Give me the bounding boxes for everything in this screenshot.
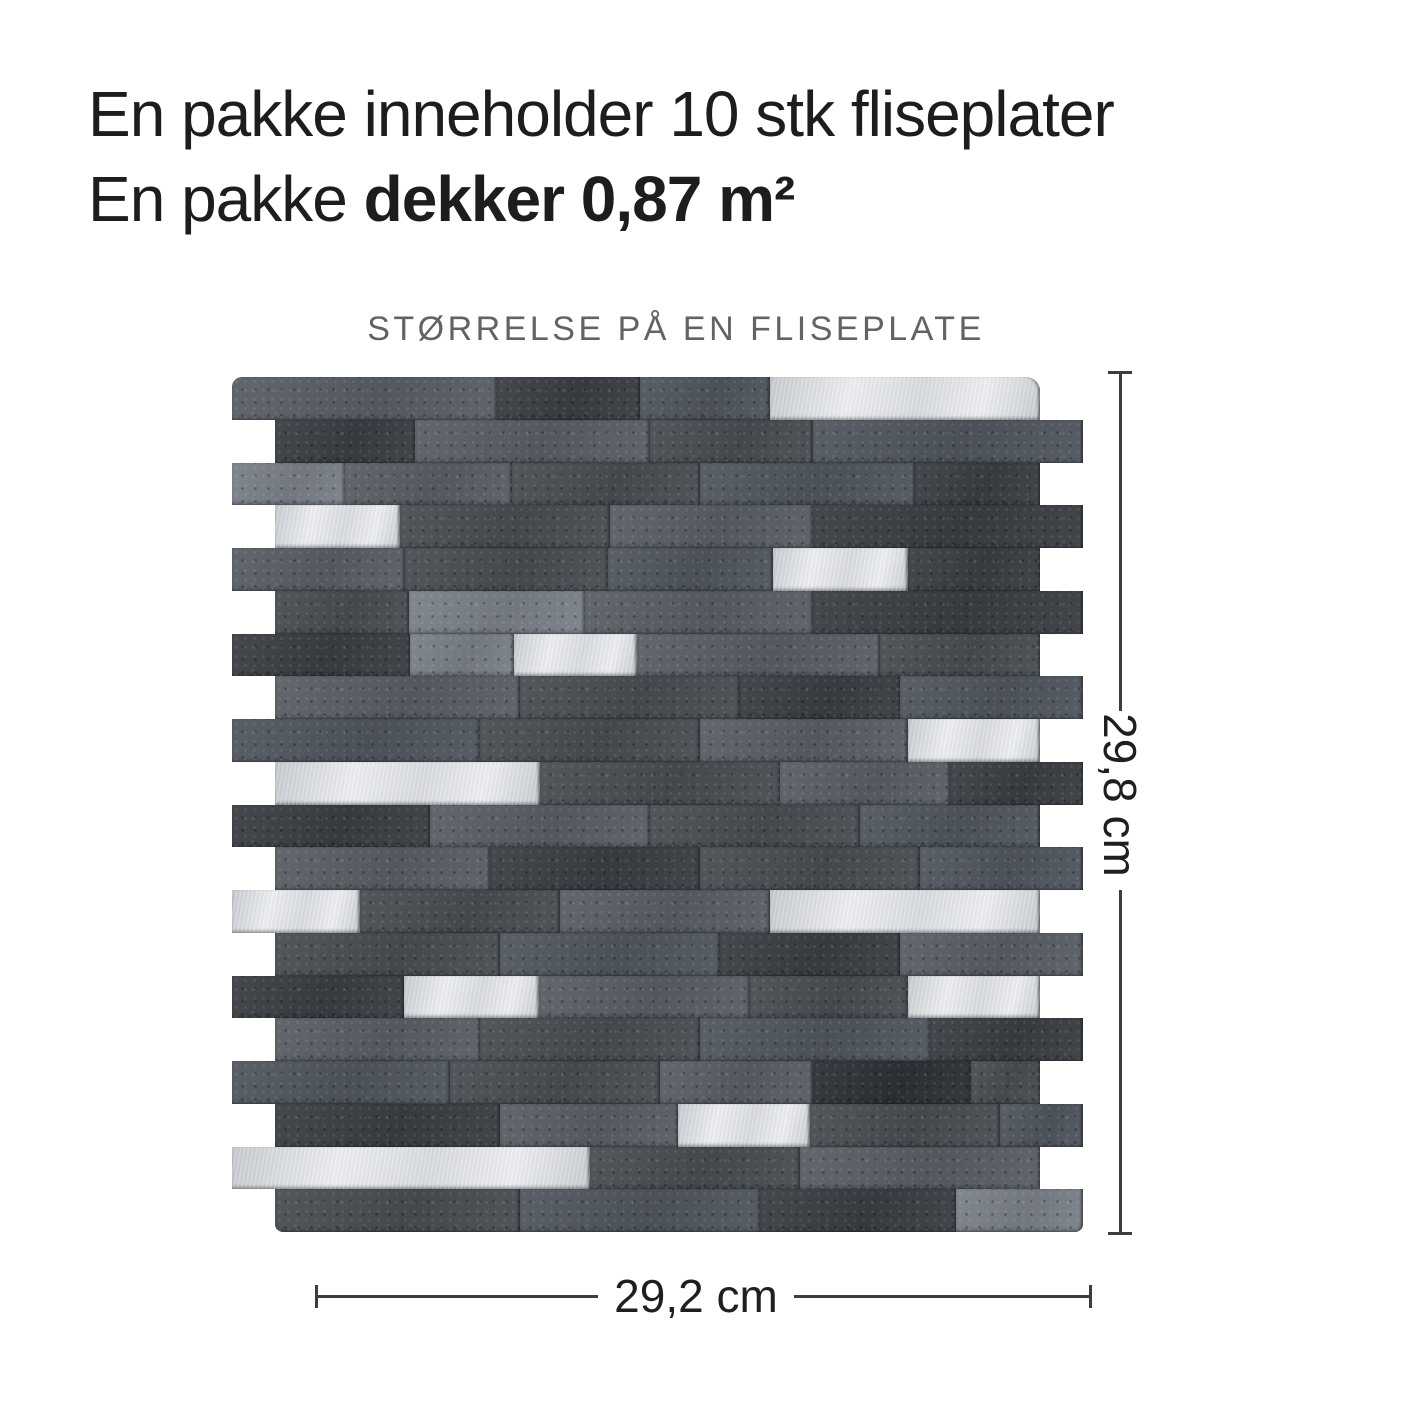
stone-brick [232,976,404,1019]
metal-brick [275,505,400,548]
height-dimension-bottom-cap [1108,1232,1132,1235]
tile-row [275,420,1083,463]
width-dimension-label: 29,2 cm [598,1268,794,1324]
metal-brick [232,1147,590,1190]
stone-brick [560,890,770,933]
tile-row [232,548,1040,591]
stone-brick [415,420,650,463]
stone-brick [275,1018,480,1061]
stone-brick [610,505,813,548]
product-info-image: En pakke inneholder 10 stk fliseplater E… [0,0,1406,1406]
stone-brick [275,420,415,463]
tile-panel-photo [232,377,1084,1232]
stone-brick [740,676,900,719]
metal-brick [770,377,1040,420]
metal-brick [678,1104,810,1147]
metal-brick [908,719,1040,762]
stone-brick [650,805,860,848]
stone-brick [915,463,1040,506]
stone-brick [800,1147,1040,1190]
heading-line-2: En pakke dekker 0,87 m² [88,157,1114,242]
stone-brick [750,976,908,1019]
stone-brick [908,548,1040,591]
stone-brick [450,1061,660,1104]
tile-row [275,676,1083,719]
metal-brick [773,548,908,591]
stone-brick [880,634,1040,677]
stone-brick [1000,1104,1083,1147]
width-dimension-right-cap [1089,1285,1092,1308]
tile-row [232,377,1040,420]
stone-brick [232,463,345,506]
stone-brick [430,805,650,848]
stone-brick [585,591,813,634]
heading-line-2-bold: dekker 0,87 m² [364,163,795,235]
tile-row [275,847,1083,890]
tile-row [232,463,1040,506]
stone-brick [810,1104,1000,1147]
stone-brick [660,1061,813,1104]
heading-line-1: En pakke inneholder 10 stk fliseplater [88,72,1114,157]
stone-brick [232,377,497,420]
stone-brick [410,634,514,677]
stone-brick [813,1061,971,1104]
stone-brick [650,420,813,463]
stone-brick [780,762,950,805]
stone-brick [920,847,1083,890]
tile-row [275,505,1083,548]
stone-brick [520,1189,760,1232]
stone-brick [480,719,700,762]
tile-row [275,1189,1083,1232]
stone-brick [232,719,480,762]
metal-brick [404,976,539,1019]
width-dimension-line-left [316,1295,598,1298]
stone-brick [275,1104,500,1147]
heading-block: En pakke inneholder 10 stk fliseplater E… [88,72,1114,242]
metal-brick [770,890,1040,933]
stone-brick [232,634,410,677]
tile-row [232,1147,1040,1190]
heading-line-2-regular: En pakke [88,163,364,235]
stone-brick [813,591,1083,634]
tile-row [275,933,1083,976]
tile-row [275,762,1083,805]
stone-brick [900,676,1083,719]
stone-brick [480,1018,700,1061]
stone-brick [608,548,773,591]
stone-brick [930,1018,1083,1061]
stone-brick [700,719,908,762]
metal-brick [232,890,360,933]
stone-brick [640,377,770,420]
stone-brick [497,377,640,420]
tile-row [275,1104,1083,1147]
stone-brick [275,933,500,976]
stone-brick [700,1018,930,1061]
stone-brick [700,847,920,890]
stone-brick [813,505,1083,548]
stone-brick [275,847,490,890]
stone-brick [490,847,700,890]
metal-brick [514,634,637,677]
tile-row [232,634,1040,677]
stone-brick [409,591,585,634]
stone-brick [345,463,512,506]
stone-brick [232,805,430,848]
stone-brick [539,976,750,1019]
stone-brick [500,1104,678,1147]
stone-brick [860,805,1040,848]
stone-brick [813,420,1083,463]
stone-brick [637,634,880,677]
height-dimension-label: 29,8 cm [1093,713,1147,877]
stone-brick [700,463,915,506]
tile-row [232,1061,1040,1104]
stone-brick [405,548,608,591]
stone-brick [900,933,1083,976]
stone-brick [956,1189,1083,1232]
metal-brick [275,762,540,805]
stone-brick [950,762,1083,805]
stone-brick [275,1189,520,1232]
width-dimension-line-right [794,1295,1091,1298]
height-dimension-line-upper [1119,371,1122,711]
stone-brick [232,1061,450,1104]
stone-brick [760,1189,956,1232]
stone-brick [275,676,520,719]
tile-row [232,805,1040,848]
tile-row [232,976,1040,1019]
stone-brick [520,676,740,719]
tile-row [232,719,1040,762]
tile-row [275,1018,1083,1061]
stone-brick [400,505,610,548]
stone-brick [232,548,405,591]
stone-brick [720,933,900,976]
height-dimension-line-lower [1119,890,1122,1235]
section-title: STØRRELSE PÅ EN FLISEPLATE [0,306,1352,354]
tile-row [275,591,1083,634]
stone-brick [275,591,409,634]
stone-brick [971,1061,1040,1104]
stone-brick [512,463,700,506]
metal-brick [908,976,1040,1019]
stone-brick [540,762,780,805]
tile-row [232,890,1040,933]
stone-brick [500,933,720,976]
stone-brick [590,1147,800,1190]
stone-brick [360,890,560,933]
